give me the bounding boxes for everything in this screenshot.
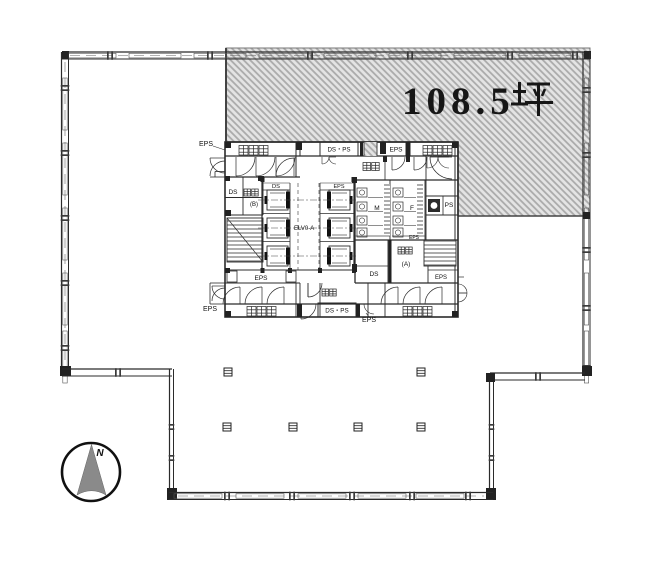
svg-text:EPS: EPS (254, 275, 268, 282)
svg-text:EPS: EPS (203, 306, 217, 313)
svg-text:DS: DS (369, 271, 379, 278)
svg-text:EPS: EPS (362, 317, 376, 324)
svg-text:(B): (B) (250, 202, 258, 208)
svg-text:DS・PS: DS・PS (327, 147, 350, 154)
svg-text:F: F (410, 205, 414, 212)
svg-text:DS: DS (228, 189, 238, 196)
svg-text:DS: DS (272, 184, 280, 190)
svg-text:ELV0-A: ELV0-A (294, 226, 314, 232)
svg-text:108.5: 108.5 (402, 80, 515, 123)
svg-text:EPS: EPS (389, 147, 403, 154)
svg-text:DS・PS: DS・PS (325, 308, 348, 315)
svg-text:PS: PS (445, 202, 454, 209)
svg-text:EPS: EPS (409, 235, 420, 241)
svg-text:M: M (374, 205, 379, 212)
svg-text:EPS: EPS (435, 275, 447, 281)
svg-text:(A): (A) (402, 261, 411, 268)
svg-text:EPS: EPS (333, 184, 344, 190)
svg-text:N: N (96, 448, 104, 459)
svg-text:EPS: EPS (199, 141, 213, 148)
